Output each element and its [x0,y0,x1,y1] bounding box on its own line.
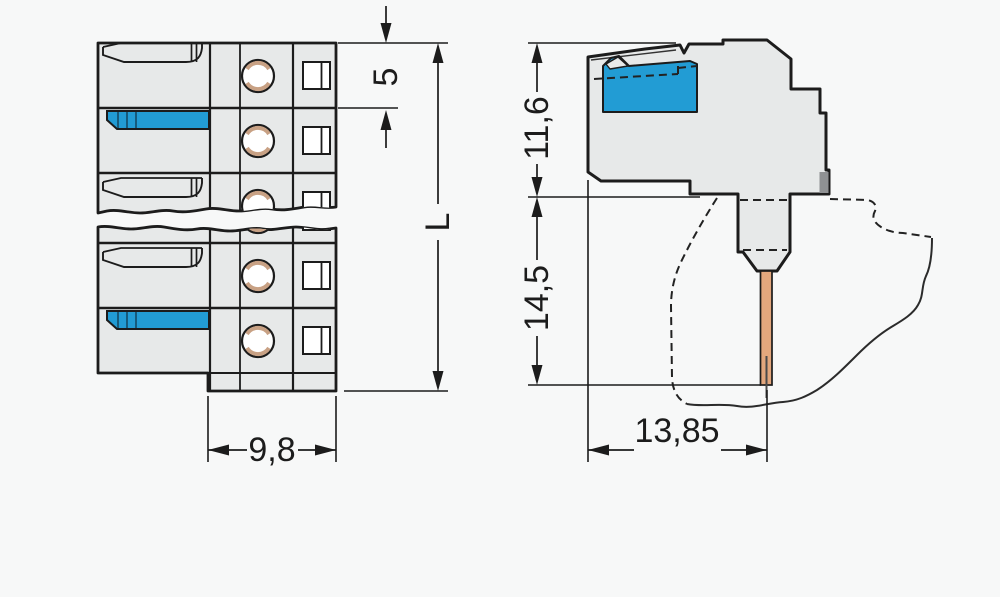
dimension-pitch-label: 5 [367,68,405,87]
solder-pin [761,271,773,398]
screw-hole-row4 [242,260,274,292]
dimension-height-upper-label: 11,6 [518,96,556,160]
screw-hole-row1 [242,60,274,92]
latch-row5-highlight [107,311,209,329]
dimension-length-label: L [419,213,457,232]
dimension-length: L [344,43,457,391]
panel-cutout-dashed [671,198,931,404]
side-view: 11,6 14,5 13,85 [518,40,932,462]
latch-row2-highlight [107,111,209,129]
screw-hole-row2 [242,125,274,157]
dimension-width-label: 9,8 [248,431,295,469]
entry-square-row4 [303,262,330,289]
entry-square-row2 [303,127,330,154]
dimension-width: 9,8 [208,396,336,469]
dimension-depth-label: 13,85 [634,412,719,450]
drawing-canvas: 5 L 9,8 [0,0,1000,597]
entry-square-row1 [303,62,330,89]
panel-block [820,172,829,193]
screw-hole-row5 [242,325,274,357]
panel-cutout-edge [687,238,932,407]
dimension-pitch: 5 [338,6,448,148]
dimension-height-lower-label: 14,5 [518,265,556,331]
screw-hole-row3 [242,190,274,222]
front-view: 5 L 9,8 [98,6,457,469]
entry-square-row5 [303,327,330,354]
dimension-height-lower: 14,5 [518,197,761,385]
entry-square-row3 [303,192,330,219]
connector-dimension-drawing: 5 L 9,8 [0,0,1000,597]
